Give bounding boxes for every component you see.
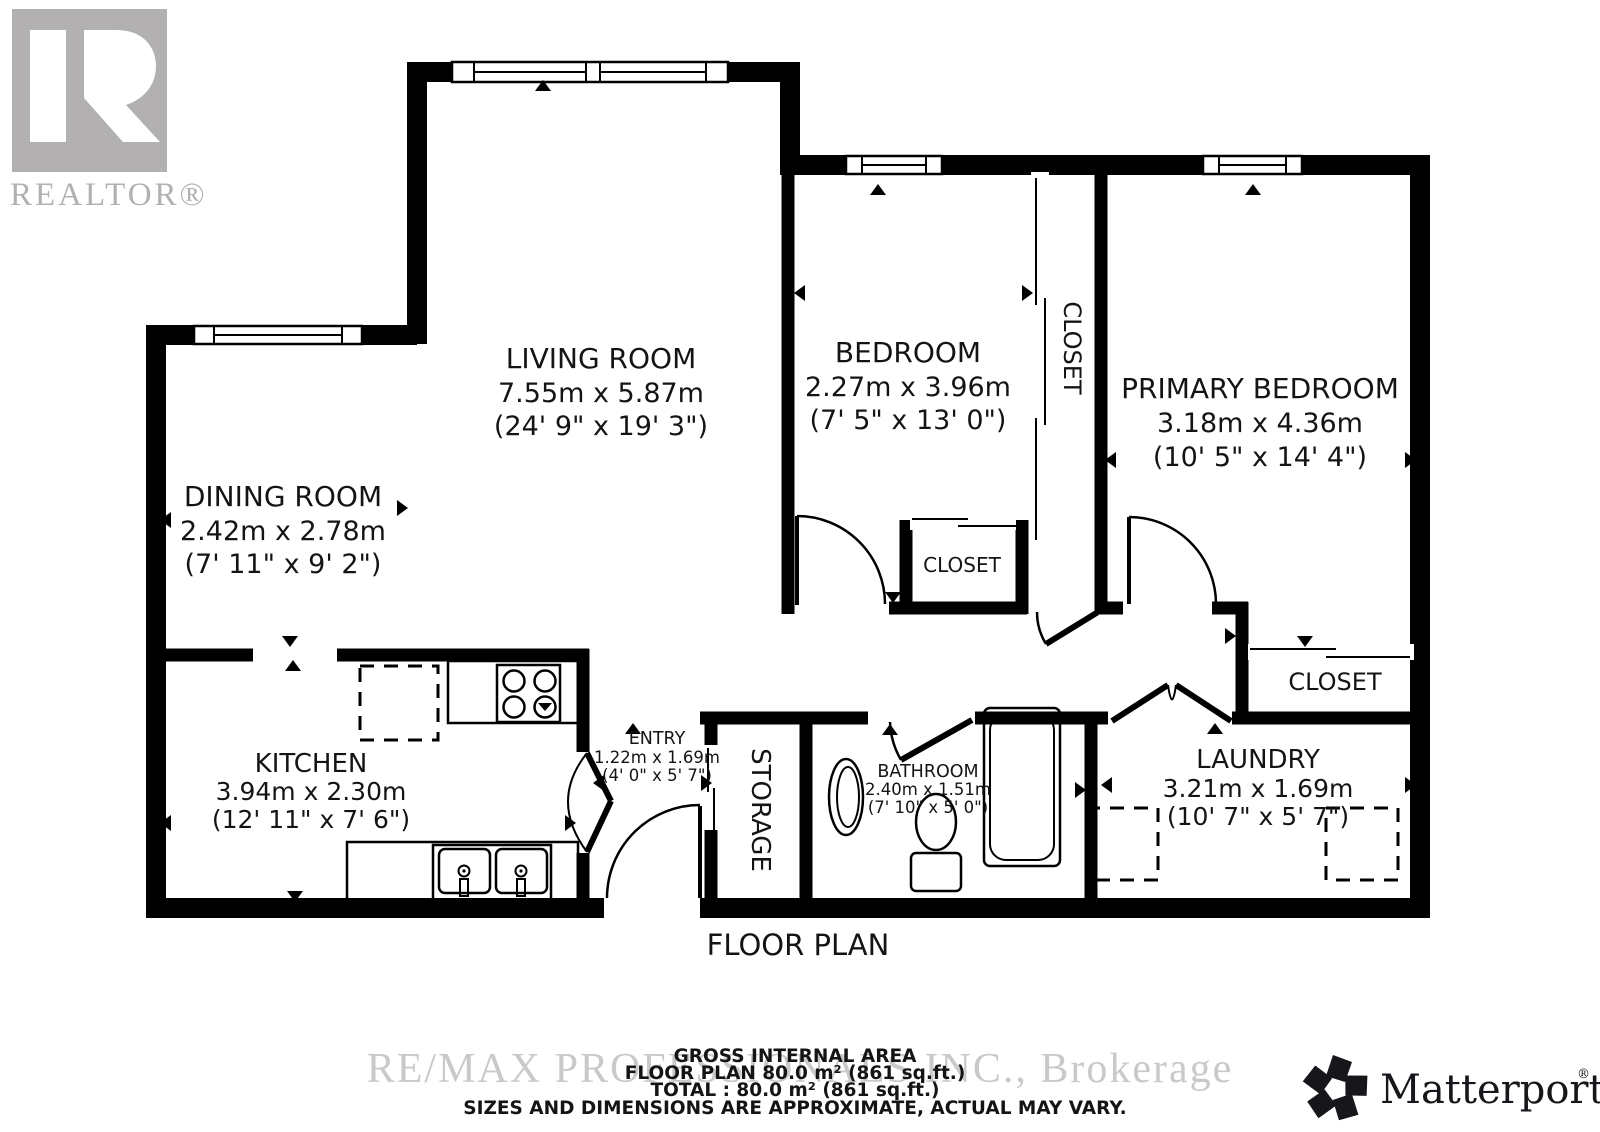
matterport-text: Matterport	[1380, 1067, 1600, 1113]
bathroom-name: BATHROOM	[877, 762, 978, 782]
kitchen-name: KITCHEN	[255, 749, 368, 779]
bedroom-window	[846, 156, 942, 174]
laundry-bifold-door	[1112, 685, 1231, 721]
matterport-logo: Matterport ®	[1301, 1055, 1600, 1126]
room-label-bathroom: BATHROOM 2.40m x 1.51m (7' 10" x 5' 0")	[865, 762, 991, 817]
dining-room-window	[194, 326, 362, 344]
primary-bedroom-door	[1129, 517, 1216, 604]
living-room-imperial: (24' 9" x 19' 3")	[494, 411, 708, 442]
primary-bedroom-imperial: (10' 5" x 14' 4")	[1153, 442, 1367, 473]
matterport-icon	[1301, 1055, 1374, 1126]
storage-label: STORAGE	[745, 748, 775, 872]
living-room-metric: 7.55m x 5.87m	[498, 378, 704, 409]
bedroom-name: BEDROOM	[835, 336, 981, 369]
hall-closet-door	[1037, 612, 1098, 644]
bedroom-imperial: (7' 5" x 13' 0")	[810, 405, 1007, 436]
room-label-kitchen: KITCHEN 3.94m x 2.30m (12' 11" x 7' 6")	[212, 749, 410, 834]
primary-bedroom-window	[1203, 156, 1302, 174]
laundry-metric: 3.21m x 1.69m	[1163, 774, 1354, 803]
dining-room-imperial: (7' 11" x 9' 2")	[185, 549, 382, 580]
kitchen-metric: 3.94m x 2.30m	[216, 777, 407, 806]
primary-bedroom-name: PRIMARY BEDROOM	[1121, 372, 1399, 405]
bedroom-door	[797, 516, 885, 605]
room-label-dining-room: DINING ROOM 2.42m x 2.78m (7' 11" x 9' 2…	[180, 480, 386, 580]
bathroom-sink	[829, 759, 863, 835]
room-label-entry: ENTRY 1.22m x 1.69m (4' 0" x 5' 7")	[594, 729, 720, 785]
refrigerator	[360, 666, 438, 740]
primary-closet-label: CLOSET	[1288, 668, 1382, 696]
laundry-name: LAUNDRY	[1196, 745, 1320, 775]
footer-disclaimer: SIZES AND DIMENSIONS ARE APPROXIMATE, AC…	[463, 1098, 1126, 1119]
hall-closet-sliding-door	[1031, 172, 1049, 542]
floor-plan-page: RE/MAX PROFESSIONALS INC., Brokerage REA…	[0, 0, 1600, 1132]
room-label-living-room: LIVING ROOM 7.55m x 5.87m (24' 9" x 19' …	[494, 342, 708, 442]
entry-imperial: (4' 0" x 5' 7")	[602, 766, 712, 785]
room-label-laundry: LAUNDRY 3.21m x 1.69m (10' 7" x 5' 7")	[1163, 745, 1354, 831]
dining-room-metric: 2.42m x 2.78m	[180, 516, 386, 547]
realtor-logo-text: REALTOR®	[10, 177, 208, 213]
laundry-imperial: (10' 7" x 5' 7")	[1167, 802, 1349, 831]
windows	[194, 62, 1302, 344]
primary-closet-sliding-door	[1248, 644, 1414, 660]
floor-plan-title: FLOOR PLAN	[707, 928, 890, 962]
bedroom-metric: 2.27m x 3.96m	[805, 372, 1011, 403]
kitchen-sink	[433, 845, 551, 901]
matterport-registered-mark: ®	[1577, 1067, 1590, 1082]
bedroom-closet-label: CLOSET	[923, 553, 1001, 577]
room-label-bedroom: BEDROOM 2.27m x 3.96m (7' 5" x 13' 0")	[805, 336, 1011, 436]
primary-bedroom-metric: 3.18m x 4.36m	[1157, 408, 1363, 439]
realtor-logo: REALTOR®	[10, 9, 208, 213]
kitchen-imperial: (12' 11" x 7' 6")	[212, 805, 410, 834]
bedroom-closet-sliding-door	[910, 514, 1016, 530]
bathroom-door	[890, 720, 972, 760]
bathtub	[984, 708, 1060, 866]
stove	[497, 665, 560, 722]
entry-metric: 1.22m x 1.69m	[594, 748, 720, 767]
bathroom-metric: 2.40m x 1.51m	[865, 780, 991, 799]
entry-door	[607, 805, 700, 898]
dining-room-name: DINING ROOM	[184, 480, 382, 513]
entry-name: ENTRY	[629, 729, 686, 749]
living-room-window	[452, 62, 728, 82]
bathroom-imperial: (7' 10" x 5' 0")	[868, 798, 988, 817]
hall-closet-label: CLOSET	[1058, 301, 1086, 395]
living-room-name: LIVING ROOM	[506, 342, 697, 375]
room-label-primary-bedroom: PRIMARY BEDROOM 3.18m x 4.36m (10' 5" x …	[1121, 372, 1399, 473]
